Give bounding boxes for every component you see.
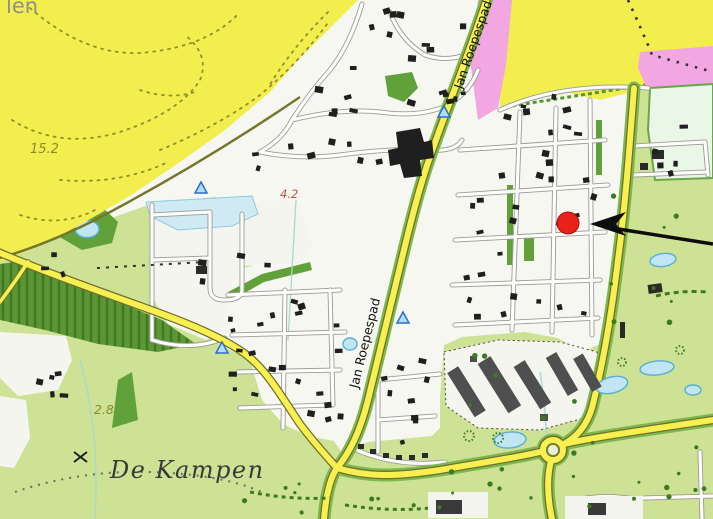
label-area-de-kampen: De Kampen [109,456,265,484]
label-height-1: 15.2 [30,142,59,157]
roundabout-center [548,445,558,455]
label-height-2: 4.2 [280,187,298,201]
label-partial-place: len [6,0,38,18]
topographic-map[interactable]: len 15.2 4.2 2.8 De Kampen Jan Roepespad… [0,0,713,519]
label-height-3: 2.8 [94,402,114,417]
location-marker[interactable] [557,212,579,234]
map-canvas: len 15.2 4.2 2.8 De Kampen Jan Roepespad… [0,0,713,519]
